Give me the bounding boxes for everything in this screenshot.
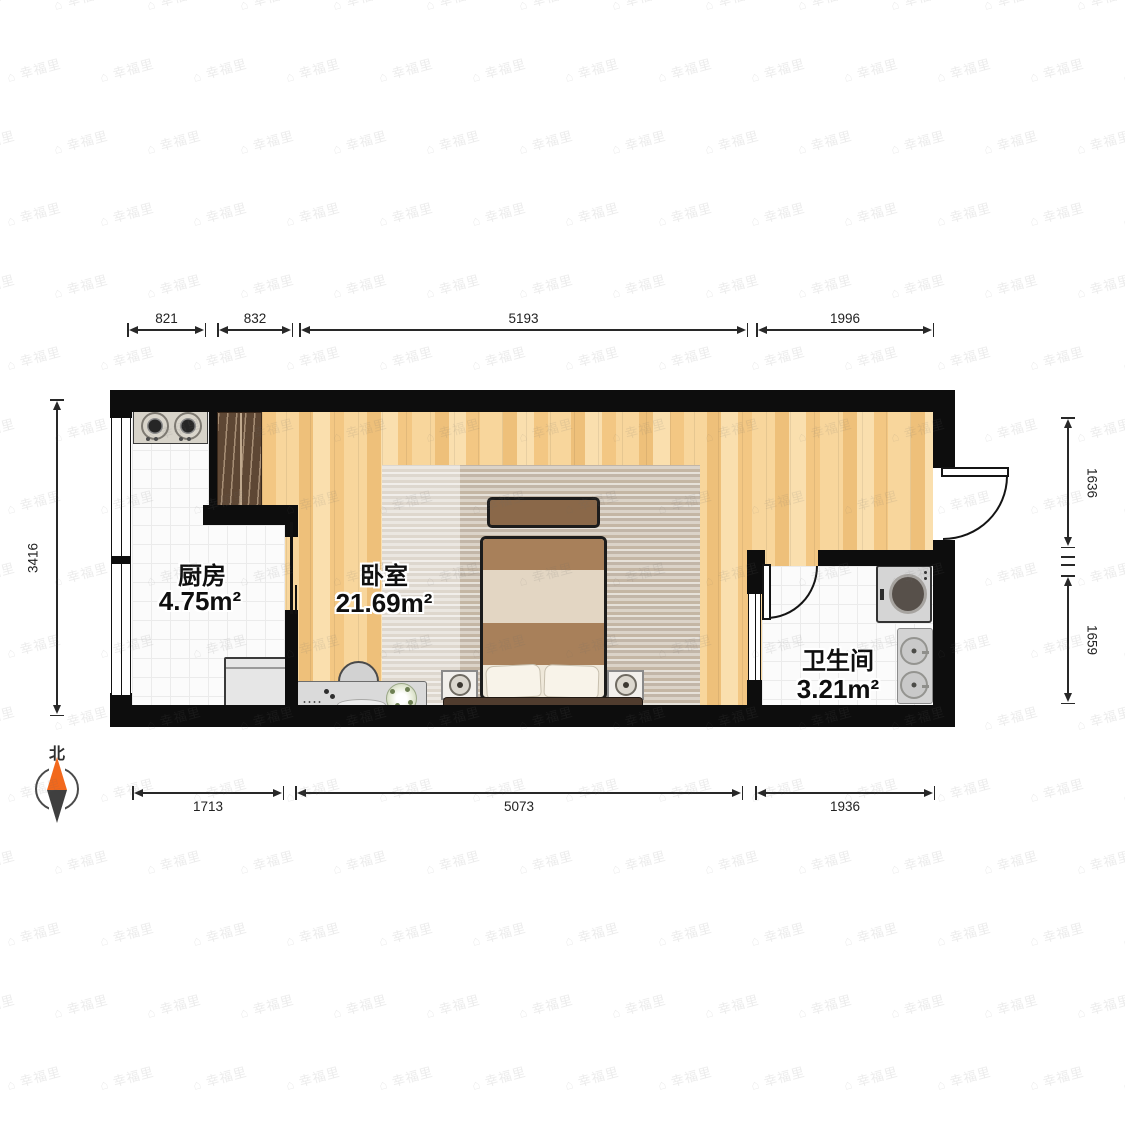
- bedroom-area: 21.69m²: [304, 588, 464, 619]
- watermark-stamp: ⌂ 幸福里: [330, 989, 388, 1022]
- lamp-icon: [615, 674, 637, 696]
- kitchen-sliding-door-track: [295, 585, 297, 614]
- watermark-stamp: ⌂ 幸福里: [516, 845, 574, 878]
- watermark-stamp: ⌂ 幸福里: [655, 53, 713, 86]
- watermark-stamp: ⌂ 幸福里: [469, 917, 527, 950]
- watermark-stamp: ⌂ 幸福里: [888, 845, 946, 878]
- watermark-stamp: ⌂ 幸福里: [934, 773, 992, 806]
- watermark-stamp: ⌂ 幸福里: [469, 53, 527, 86]
- watermark-stamp: ⌂ 幸福里: [516, 989, 574, 1022]
- watermark-stamp: ⌂ 幸福里: [1027, 1061, 1085, 1094]
- watermark-stamp: ⌂ 幸福里: [888, 0, 946, 14]
- watermark-stamp: ⌂ 幸福里: [4, 341, 62, 374]
- watermark-stamp: ⌂ 幸福里: [609, 0, 667, 14]
- watermark-stamp: ⌂ 幸福里: [97, 917, 155, 950]
- bathroom-area: 3.21m²: [758, 674, 918, 705]
- watermark-stamp: ⌂ 幸福里: [1074, 701, 1125, 734]
- bathroom-door-panel: [762, 564, 771, 620]
- watermark-stamp: ⌂ 幸福里: [4, 917, 62, 950]
- watermark-stamp: ⌂ 幸福里: [0, 845, 17, 878]
- washer-drum-icon: [889, 574, 927, 614]
- watermark-stamp: ⌂ 幸福里: [981, 701, 1039, 734]
- watermark-stamp: ⌂ 幸福里: [469, 197, 527, 230]
- watermark-stamp: ⌂ 幸福里: [1074, 269, 1125, 302]
- wall-bathroom-left-upper: [747, 566, 762, 594]
- watermark-stamp: ⌂ 幸福里: [97, 1061, 155, 1094]
- floorplan-page: { "watermark": { "text": "幸福里", "logo_gl…: [0, 0, 1125, 1125]
- watermark-stamp: ⌂ 幸福里: [609, 989, 667, 1022]
- watermark-stamp: ⌂ 幸福里: [144, 125, 202, 158]
- watermark-stamp: ⌂ 幸福里: [51, 989, 109, 1022]
- watermark-stamp: ⌂ 幸福里: [423, 989, 481, 1022]
- watermark-stamp: ⌂ 幸福里: [4, 629, 62, 662]
- watermark-stamp: ⌂ 幸福里: [702, 125, 760, 158]
- watermark-stamp: ⌂ 幸福里: [1074, 413, 1125, 446]
- double-bed: [480, 536, 607, 700]
- washer-door-tab: [880, 589, 884, 600]
- watermark-stamp: ⌂ 幸福里: [97, 197, 155, 230]
- watermark-stamp: ⌂ 幸福里: [1027, 341, 1085, 374]
- watermark-stamp: ⌂ 幸福里: [423, 845, 481, 878]
- watermark-stamp: ⌂ 幸福里: [237, 0, 295, 14]
- blanket-band: [483, 570, 604, 623]
- watermark-stamp: ⌂ 幸福里: [376, 53, 434, 86]
- watermark-stamp: ⌂ 幸福里: [748, 341, 806, 374]
- watermark-stamp: ⌂ 幸福里: [795, 269, 853, 302]
- nightstand-left: [441, 670, 478, 700]
- watermark-stamp: ⌂ 幸福里: [609, 269, 667, 302]
- watermark-stamp: ⌂ 幸福里: [1027, 917, 1085, 950]
- watermark-stamp: ⌂ 幸福里: [841, 53, 899, 86]
- watermark-stamp: ⌂ 幸福里: [795, 845, 853, 878]
- fridge: [224, 657, 288, 712]
- watermark-stamp: ⌂ 幸福里: [4, 53, 62, 86]
- watermark-stamp: ⌂ 幸福里: [4, 485, 62, 518]
- wall-kitchen-divider: [209, 412, 217, 507]
- watermark-stamp: ⌂ 幸福里: [981, 125, 1039, 158]
- kitchen-area: 4.75m²: [120, 586, 280, 617]
- watermark-stamp: ⌂ 幸福里: [51, 557, 109, 590]
- compass-needle-south-icon: [47, 790, 67, 823]
- watermark-stamp: ⌂ 幸福里: [0, 413, 17, 446]
- wall-top: [110, 390, 955, 412]
- watermark-stamp: ⌂ 幸福里: [144, 845, 202, 878]
- watermark-stamp: ⌂ 幸福里: [469, 1061, 527, 1094]
- watermark-stamp: ⌂ 幸福里: [934, 917, 992, 950]
- watermark-stamp: ⌂ 幸福里: [934, 341, 992, 374]
- wardrobe: [217, 412, 262, 507]
- watermark-stamp: ⌂ 幸福里: [283, 917, 341, 950]
- watermark-stamp: ⌂ 幸福里: [97, 341, 155, 374]
- watermark-stamp: ⌂ 幸福里: [1120, 485, 1125, 518]
- watermark-stamp: ⌂ 幸福里: [562, 917, 620, 950]
- dim-joint-tick: [1061, 564, 1075, 566]
- table-item: [324, 689, 329, 694]
- watermark-stamp: ⌂ 幸福里: [423, 125, 481, 158]
- watermark-stamp: ⌂ 幸福里: [981, 845, 1039, 878]
- watermark-stamp: ⌂ 幸福里: [1120, 197, 1125, 230]
- watermark-stamp: ⌂ 幸福里: [190, 917, 248, 950]
- watermark-stamp: ⌂ 幸福里: [376, 197, 434, 230]
- watermark-stamp: ⌂ 幸福里: [748, 197, 806, 230]
- watermark-stamp: ⌂ 幸福里: [562, 197, 620, 230]
- watermark-stamp: ⌂ 幸福里: [376, 341, 434, 374]
- burner-icon: [174, 412, 202, 440]
- washing-machine: [876, 565, 932, 623]
- nightstand-right: [607, 670, 644, 700]
- watermark-stamp: ⌂ 幸福里: [655, 197, 713, 230]
- wall-kitchen-door-bottom: [285, 610, 298, 710]
- wall-left-bottom: [110, 693, 132, 727]
- watermark-stamp: ⌂ 幸福里: [376, 917, 434, 950]
- watermark-stamp: ⌂ 幸福里: [1074, 0, 1125, 14]
- watermark-stamp: ⌂ 幸福里: [516, 269, 574, 302]
- wall-wardrobe-niche: [203, 505, 298, 525]
- watermark-stamp: ⌂ 幸福里: [609, 845, 667, 878]
- watermark-stamp: ⌂ 幸福里: [97, 53, 155, 86]
- watermark-stamp: ⌂ 幸福里: [1027, 629, 1085, 662]
- watermark-stamp: ⌂ 幸福里: [934, 197, 992, 230]
- watermark-stamp: ⌂ 幸福里: [51, 125, 109, 158]
- watermark-stamp: ⌂ 幸福里: [144, 989, 202, 1022]
- watermark-stamp: ⌂ 幸福里: [841, 197, 899, 230]
- wall-right-top: [933, 390, 955, 468]
- watermark-stamp: ⌂ 幸福里: [0, 557, 17, 590]
- watermark-stamp: ⌂ 幸福里: [423, 0, 481, 14]
- watermark-stamp: ⌂ 幸福里: [330, 0, 388, 14]
- watermark-stamp: ⌂ 幸福里: [4, 1061, 62, 1094]
- watermark-stamp: ⌂ 幸福里: [237, 845, 295, 878]
- wall-left-top: [110, 390, 132, 418]
- bedroom-label: 卧室: [304, 556, 464, 591]
- watermark-stamp: ⌂ 幸福里: [51, 413, 109, 446]
- kitchen-sliding-door: [290, 522, 293, 614]
- watermark-stamp: ⌂ 幸福里: [1074, 557, 1125, 590]
- watermark-stamp: ⌂ 幸福里: [795, 0, 853, 14]
- wall-right-bottom: [933, 540, 955, 727]
- watermark-stamp: ⌂ 幸福里: [144, 269, 202, 302]
- watermark-stamp: ⌂ 幸福里: [330, 125, 388, 158]
- watermark-stamp: ⌂ 幸福里: [1120, 773, 1125, 806]
- burner-icon: [141, 412, 169, 440]
- watermark-stamp: ⌂ 幸福里: [841, 341, 899, 374]
- watermark-stamp: ⌂ 幸福里: [1074, 125, 1125, 158]
- watermark-stamp: ⌂ 幸福里: [0, 0, 17, 14]
- watermark-stamp: ⌂ 幸福里: [283, 197, 341, 230]
- blanket-band: [483, 623, 604, 665]
- pillow: [485, 664, 542, 700]
- watermark-stamp: ⌂ 幸福里: [934, 1061, 992, 1094]
- watermark-stamp: ⌂ 幸福里: [655, 341, 713, 374]
- compass-needle-north-icon: [47, 757, 67, 790]
- watermark-stamp: ⌂ 幸福里: [1120, 53, 1125, 86]
- watermark-stamp: ⌂ 幸福里: [748, 53, 806, 86]
- blanket-band: [483, 539, 604, 570]
- watermark-stamp: ⌂ 幸福里: [655, 917, 713, 950]
- watermark-stamp: ⌂ 幸福里: [981, 989, 1039, 1022]
- wall-bathroom-top-right: [818, 550, 933, 566]
- watermark-stamp: ⌂ 幸福里: [4, 197, 62, 230]
- entry-door-swing-arc: [943, 476, 1008, 540]
- gas-stove: [133, 407, 208, 444]
- watermark-stamp: ⌂ 幸福里: [702, 269, 760, 302]
- watermark-stamp: ⌂ 幸福里: [981, 269, 1039, 302]
- watermark-stamp: ⌂ 幸福里: [841, 1061, 899, 1094]
- lamp-icon: [449, 674, 471, 696]
- watermark-stamp: ⌂ 幸福里: [1120, 1061, 1125, 1094]
- watermark-stamp: ⌂ 幸福里: [888, 125, 946, 158]
- watermark-stamp: ⌂ 幸福里: [0, 269, 17, 302]
- watermark-stamp: ⌂ 幸福里: [0, 125, 17, 158]
- watermark-stamp: ⌂ 幸福里: [655, 1061, 713, 1094]
- watermark-stamp: ⌂ 幸福里: [190, 341, 248, 374]
- watermark-stamp: ⌂ 幸福里: [283, 1061, 341, 1094]
- watermark-stamp: ⌂ 幸福里: [562, 1061, 620, 1094]
- watermark-stamp: ⌂ 幸福里: [423, 269, 481, 302]
- watermark-stamp: ⌂ 幸福里: [1074, 989, 1125, 1022]
- watermark-stamp: ⌂ 幸福里: [283, 53, 341, 86]
- watermark-stamp: ⌂ 幸福里: [0, 701, 17, 734]
- watermark-stamp: ⌂ 幸福里: [609, 125, 667, 158]
- watermark-stamp: ⌂ 幸福里: [1120, 629, 1125, 662]
- watermark-stamp: ⌂ 幸福里: [562, 53, 620, 86]
- watermark-stamp: ⌂ 幸福里: [516, 125, 574, 158]
- wardrobe-rail: [240, 413, 242, 506]
- watermark-stamp: ⌂ 幸福里: [1027, 773, 1085, 806]
- watermark-stamp: ⌂ 幸福里: [702, 845, 760, 878]
- dim-joint-tick: [1061, 556, 1075, 558]
- watermark-stamp: ⌂ 幸福里: [330, 269, 388, 302]
- fridge-door-line: [226, 667, 286, 669]
- watermark-stamp: ⌂ 幸福里: [1027, 485, 1085, 518]
- watermark-stamp: ⌂ 幸福里: [1120, 917, 1125, 950]
- watermark-stamp: ⌂ 幸福里: [237, 125, 295, 158]
- watermark-stamp: ⌂ 幸福里: [981, 557, 1039, 590]
- watermark-stamp: ⌂ 幸福里: [376, 1061, 434, 1094]
- watermark-stamp: ⌂ 幸福里: [981, 413, 1039, 446]
- watermark-stamp: ⌂ 幸福里: [981, 0, 1039, 14]
- watermark-stamp: ⌂ 幸福里: [888, 269, 946, 302]
- bathroom-label: 卫生间: [758, 641, 918, 676]
- watermark-stamp: ⌂ 幸福里: [702, 0, 760, 14]
- watermark-stamp: ⌂ 幸福里: [702, 989, 760, 1022]
- watermark-stamp: ⌂ 幸福里: [190, 1061, 248, 1094]
- watermark-stamp: ⌂ 幸福里: [795, 125, 853, 158]
- watermark-stamp: ⌂ 幸福里: [51, 269, 109, 302]
- watermark-stamp: ⌂ 幸福里: [0, 989, 17, 1022]
- watermark-stamp: ⌂ 幸福里: [190, 53, 248, 86]
- watermark-stamp: ⌂ 幸福里: [283, 341, 341, 374]
- wall-bottom: [110, 705, 955, 727]
- watermark-stamp: ⌂ 幸福里: [190, 197, 248, 230]
- watermark-stamp: ⌂ 幸福里: [51, 0, 109, 14]
- watermark-stamp: ⌂ 幸福里: [562, 341, 620, 374]
- entry-door-panel: [941, 467, 1009, 477]
- watermark-stamp: ⌂ 幸福里: [841, 917, 899, 950]
- watermark-stamp: ⌂ 幸福里: [1120, 341, 1125, 374]
- watermark-stamp: ⌂ 幸福里: [330, 845, 388, 878]
- watermark-stamp: ⌂ 幸福里: [1074, 845, 1125, 878]
- watermark-stamp: ⌂ 幸福里: [1027, 53, 1085, 86]
- watermark-stamp: ⌂ 幸福里: [51, 845, 109, 878]
- watermark-stamp: ⌂ 幸福里: [237, 269, 295, 302]
- watermark-stamp: ⌂ 幸福里: [516, 0, 574, 14]
- watermark-stamp: ⌂ 幸福里: [469, 341, 527, 374]
- watermark-stamp: ⌂ 幸福里: [1027, 197, 1085, 230]
- bed-foot-bench: [487, 497, 600, 528]
- table-item: [330, 694, 335, 699]
- watermark-stamp: ⌂ 幸福里: [237, 989, 295, 1022]
- watermark-stamp: ⌂ 幸福里: [888, 989, 946, 1022]
- pillow: [543, 664, 599, 699]
- watermark-stamp: ⌂ 幸福里: [934, 53, 992, 86]
- watermark-stamp: ⌂ 幸福里: [748, 1061, 806, 1094]
- watermark-stamp: ⌂ 幸福里: [748, 917, 806, 950]
- watermark-stamp: ⌂ 幸福里: [795, 989, 853, 1022]
- watermark-stamp: ⌂ 幸福里: [144, 0, 202, 14]
